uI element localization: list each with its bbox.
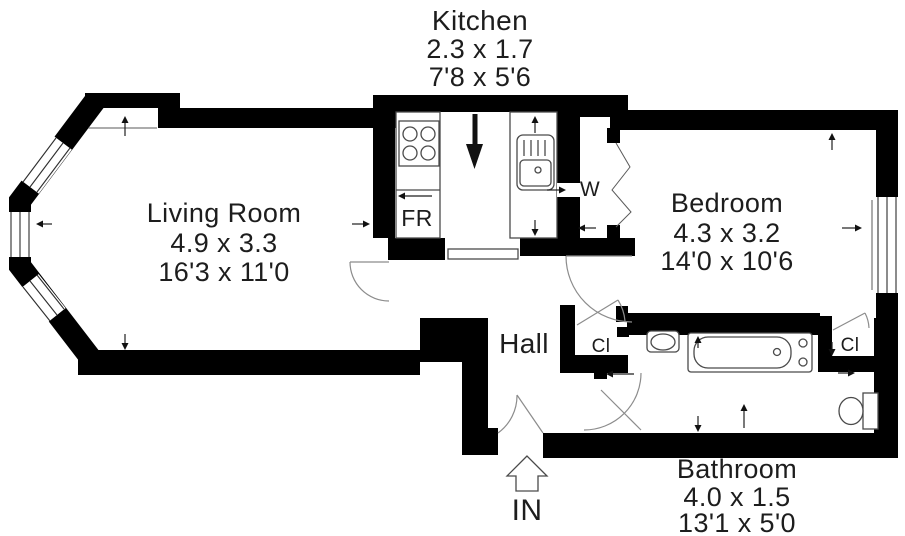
- wall-segment: [876, 110, 898, 197]
- wall-segment: [78, 350, 420, 375]
- bedroom-closet-door-arc: [865, 313, 869, 328]
- wall-segment: [420, 318, 488, 362]
- kitchen-name: Kitchen: [432, 5, 528, 36]
- floor-plan: Kitchen 2.3 x 1.7 7'8 x 5'6 Living Room …: [0, 0, 905, 536]
- wall-segment: [388, 238, 445, 260]
- wall-segment: [373, 108, 395, 238]
- wall-segment: [607, 128, 620, 143]
- arrow-down-icon: [122, 343, 129, 350]
- wall-segment: [594, 369, 607, 379]
- fridge-label: FR: [401, 205, 432, 231]
- toilet-bowl: [839, 398, 863, 425]
- wall-segment: [462, 428, 498, 455]
- wall-segment: [610, 110, 898, 130]
- bedroom-name: Bedroom: [671, 188, 783, 218]
- entry-door-leaf: [517, 395, 543, 433]
- hall-name: Hall: [499, 328, 549, 359]
- wall-segment: [557, 112, 580, 238]
- toilet-cistern: [863, 393, 878, 429]
- bedroom-imperial: 14'0 x 10'6: [660, 246, 793, 276]
- kitchen-entry-arrow: [466, 114, 483, 169]
- bathroom-name: Bathroom: [677, 454, 797, 484]
- living-room-door-arc: [350, 262, 389, 301]
- labels: Kitchen 2.3 x 1.7 7'8 x 5'6 Living Room …: [147, 5, 860, 536]
- bay-windows: [9, 128, 157, 321]
- wardrobe-label: W: [580, 178, 600, 201]
- living-room-imperial: 16'3 x 11'0: [158, 257, 289, 287]
- wall-segment: [617, 327, 629, 337]
- entrance-arrow-icon: [507, 456, 547, 491]
- living-room-name: Living Room: [147, 198, 301, 228]
- wall-segment: [520, 238, 635, 256]
- living-room-metric: 4.9 x 3.3: [170, 228, 277, 258]
- threshold: [448, 249, 518, 259]
- arrow-down-icon: [466, 144, 483, 169]
- arrow-down-icon: [695, 425, 702, 432]
- arrow-up-icon: [122, 116, 129, 123]
- wall-segment: [818, 356, 875, 372]
- bedroom-window: [872, 197, 898, 293]
- bathroom-door-leaf: [601, 390, 641, 430]
- floor-plan-drawing: Kitchen 2.3 x 1.7 7'8 x 5'6 Living Room …: [0, 0, 905, 536]
- bathtub: [688, 333, 812, 372]
- arrow-right-icon: [363, 221, 370, 228]
- wall-segment: [462, 362, 488, 434]
- entry-door-arc: [498, 395, 517, 433]
- arrow-up-icon: [829, 133, 836, 140]
- wall-segment: [607, 225, 620, 240]
- sink-unit: [517, 135, 554, 190]
- bedroom-closet-door: [833, 313, 865, 330]
- arrow-right-icon: [855, 225, 862, 232]
- bathroom-imperial: 13'1 x 5'0: [678, 508, 796, 536]
- hall-closet-label: Cl: [592, 336, 611, 357]
- bedroom-metric: 4.3 x 3.2: [673, 218, 780, 248]
- wall-segment: [373, 95, 583, 112]
- kitchen-metric: 2.3 x 1.7: [426, 34, 533, 64]
- wall-segment: [158, 108, 375, 128]
- stove: [399, 121, 439, 166]
- entrance-label: IN: [512, 494, 543, 527]
- kitchen-imperial: 7'8 x 5'6: [429, 62, 531, 92]
- arrow-up-icon: [741, 404, 748, 411]
- bedroom-closet-label: Cl: [841, 335, 860, 356]
- wardrobe-bifold-doors: [612, 143, 631, 227]
- hall-closet-door: [577, 300, 618, 325]
- arrow-shaft: [473, 114, 478, 146]
- arrow-left-icon: [36, 221, 43, 228]
